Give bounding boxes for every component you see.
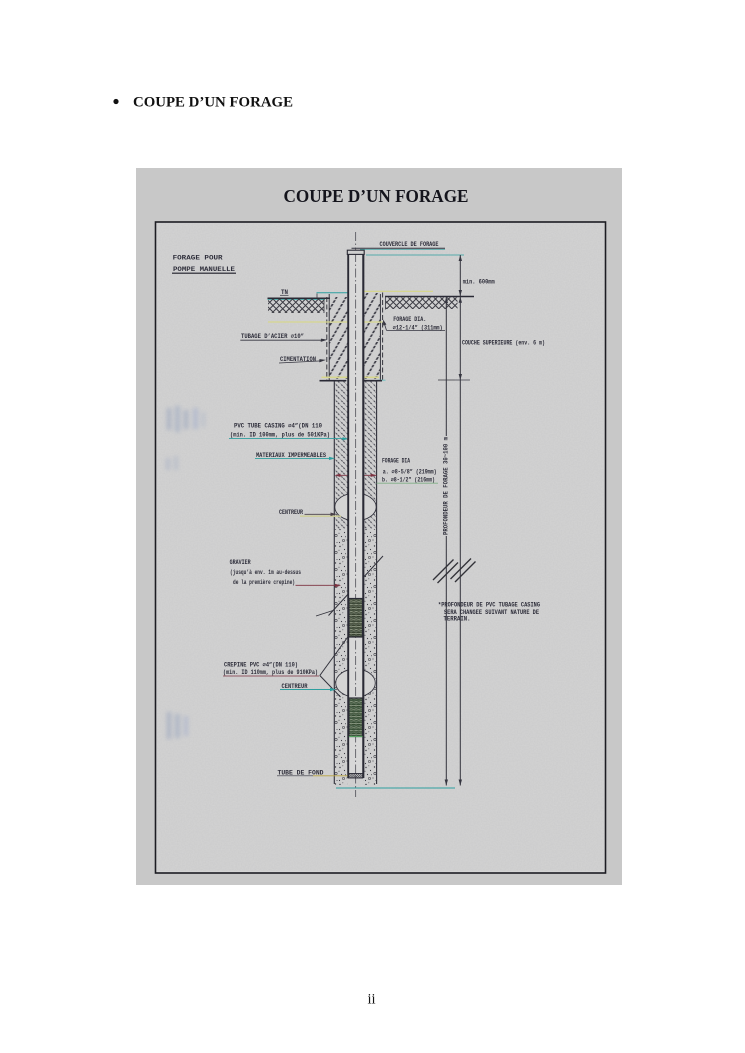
svg-text:COUCHE SUPERIEURE (env. 6 m): COUCHE SUPERIEURE (env. 6 m) [462, 340, 545, 347]
svg-text:CENTREUR: CENTREUR [279, 509, 303, 516]
svg-text:b. ∅8-1/2” (216mm): b. ∅8-1/2” (216mm) [382, 477, 435, 484]
svg-text:FORAGE DIA.: FORAGE DIA. [393, 316, 426, 323]
svg-text:*PROFONDEUR DE PVC TUBAGE CASI: *PROFONDEUR DE PVC TUBAGE CASING [438, 602, 540, 609]
svg-text:de la première crepine): de la première crepine) [233, 579, 295, 586]
svg-text:COUPE D’UN FORAGE: COUPE D’UN FORAGE [284, 186, 469, 206]
svg-text:TERRAIN.: TERRAIN. [444, 616, 471, 623]
svg-text:(min. ID 100mm, plus de 501KPa: (min. ID 100mm, plus de 501KPa) [230, 432, 330, 439]
svg-text:PROFONDEUR DE FORAGE 30~100 m: PROFONDEUR DE FORAGE 30~100 m [443, 437, 450, 535]
svg-text:COUVERCLE DE FORAGE: COUVERCLE DE FORAGE [380, 241, 439, 248]
svg-text:COUPE D’UN FORAGE: COUPE D’UN FORAGE [133, 95, 293, 111]
svg-text:(min. ID 110mm, plus de 910KPa: (min. ID 110mm, plus de 910KPa) [223, 669, 318, 676]
svg-text:min. 600mm: min. 600mm [463, 279, 495, 286]
svg-text:TUBAGE D’ACIER ∅10”: TUBAGE D’ACIER ∅10” [241, 333, 304, 340]
svg-text:PVC TUBE CASING ∅4”(DN 110: PVC TUBE CASING ∅4”(DN 110 [234, 423, 322, 430]
svg-text:GRAVIER: GRAVIER [230, 559, 251, 566]
svg-text:FORAGE DIA: FORAGE DIA [382, 457, 410, 464]
svg-text:(jusqu’à env. 1m au-dessus: (jusqu’à env. 1m au-dessus [230, 569, 301, 576]
svg-text:a. ∅8-5/8” (219mm): a. ∅8-5/8” (219mm) [383, 469, 437, 476]
svg-text:FORAGE POUR: FORAGE POUR [173, 255, 224, 262]
svg-text:CENTREUR: CENTREUR [282, 683, 308, 690]
svg-text:POMPE MANUELLE: POMPE MANUELLE [173, 266, 235, 273]
svg-text:CREPINE PVC ∅4”(DN 110): CREPINE PVC ∅4”(DN 110) [224, 662, 298, 669]
svg-text:ii: ii [368, 992, 376, 1008]
